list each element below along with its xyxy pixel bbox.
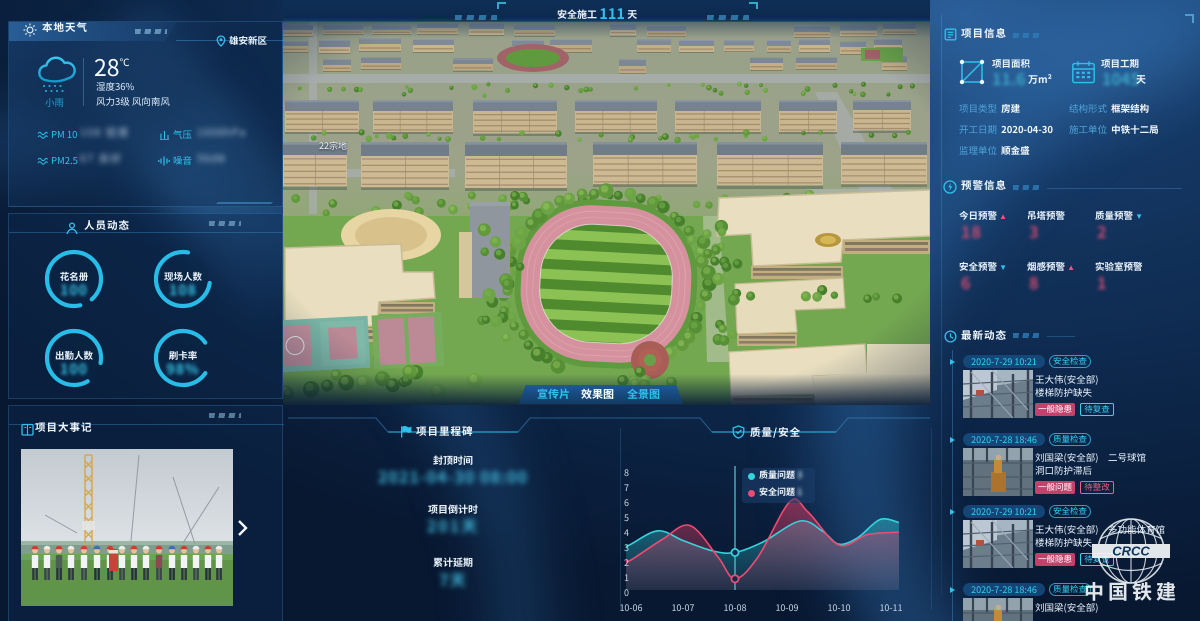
svg-text:中国铁建: 中国铁建 (1084, 576, 1180, 605)
svg-text:CRCC: CRCC (1112, 544, 1150, 559)
